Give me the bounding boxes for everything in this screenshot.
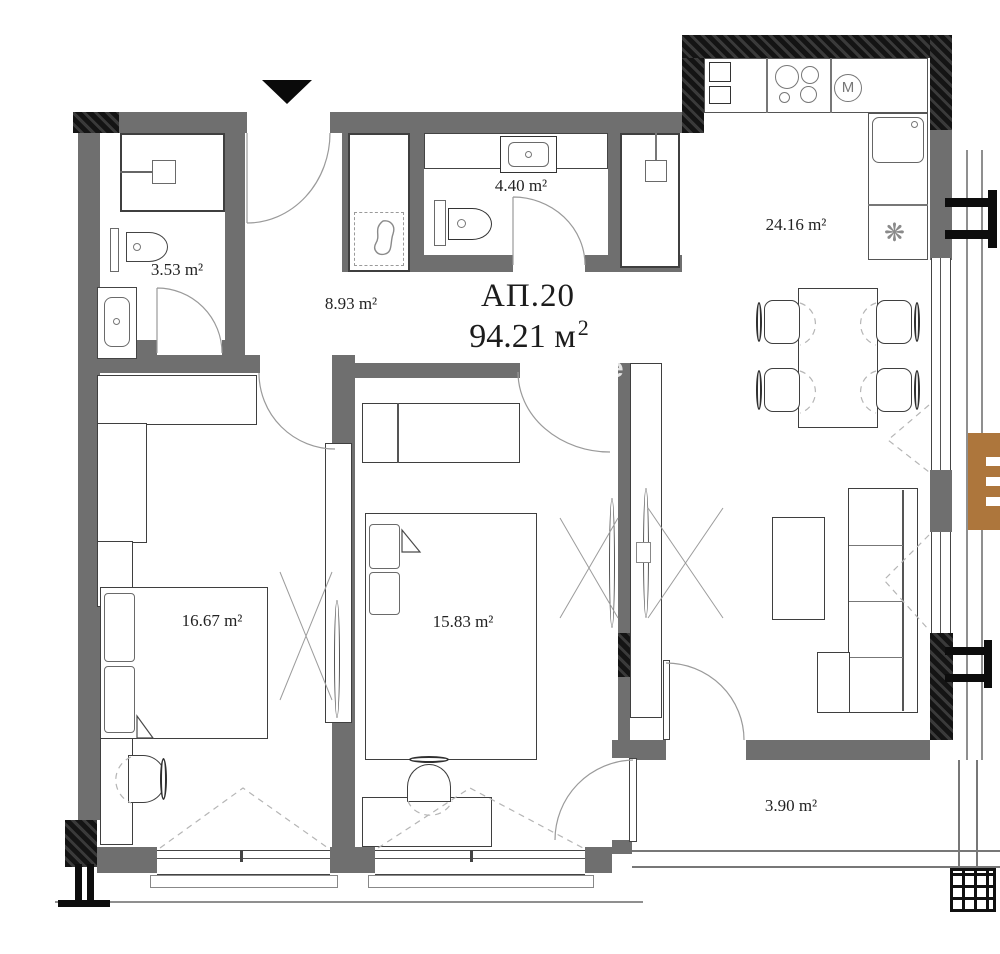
window-open-right1 bbox=[888, 405, 929, 472]
sliding-door-bedroom2 bbox=[609, 498, 615, 628]
bed-2-pillow-b bbox=[369, 572, 400, 615]
desk-chair-1-back bbox=[160, 758, 167, 800]
wall-right-top bbox=[930, 35, 952, 130]
balcony-column-grid bbox=[950, 868, 996, 912]
door-arc-bath1 bbox=[157, 288, 222, 353]
closet-right bbox=[620, 133, 680, 268]
dining-chair-2 bbox=[764, 368, 800, 412]
wardrobe-bed2-top bbox=[362, 403, 520, 463]
dining-table bbox=[798, 288, 878, 428]
fixture-stem bbox=[655, 133, 657, 160]
window-bedroom1-mullion bbox=[240, 850, 243, 862]
label-bathroom1: 3.53 m² bbox=[138, 260, 216, 280]
watermark: e bbox=[608, 352, 624, 384]
desk-2 bbox=[362, 797, 492, 847]
toilet-2-icon bbox=[448, 208, 492, 240]
label-bathroom2: 4.40 m² bbox=[478, 176, 564, 196]
wall-bedroom2-top bbox=[355, 363, 520, 378]
dining-chair-4 bbox=[876, 368, 912, 412]
ground-line bbox=[55, 901, 643, 903]
kitchen-counter-top bbox=[704, 58, 928, 113]
apartment-total-area: 94.21 м2 bbox=[418, 318, 638, 356]
door-leaf-balcony-living bbox=[663, 660, 670, 740]
desk-chair-2-back bbox=[409, 756, 449, 763]
label-kitchen-living: 24.16 m² bbox=[748, 215, 844, 235]
door-arc-entry bbox=[247, 133, 330, 223]
balcony-rail-r1 bbox=[958, 760, 960, 866]
wall-top-2 bbox=[330, 112, 682, 133]
kitchen-unit-a bbox=[709, 62, 731, 82]
toilet-1-drain bbox=[133, 243, 141, 251]
counter-divider-1 bbox=[766, 58, 768, 113]
section-marker-bottom-left bbox=[58, 864, 110, 908]
toilet-2-drain bbox=[457, 219, 466, 228]
counter-right-div bbox=[868, 204, 928, 206]
entrance-arrow-icon bbox=[262, 80, 312, 104]
wardrobe-bed2-div bbox=[397, 403, 399, 463]
total-area-sup: 2 bbox=[578, 315, 589, 340]
sink-2-drain bbox=[525, 151, 532, 158]
wall-closetL-bath2 bbox=[410, 133, 424, 272]
wall-bed2-balcony-b bbox=[612, 840, 632, 854]
wall-wardrobe-strip bbox=[618, 363, 630, 740]
window-bedroom1-sill bbox=[150, 875, 338, 888]
window-right-2-glass bbox=[940, 532, 941, 633]
window-bedroom2-sill bbox=[368, 875, 594, 888]
dining-chair-2-back bbox=[756, 370, 762, 410]
wardrobe-bed1-side bbox=[97, 423, 147, 543]
coffee-table bbox=[772, 517, 825, 620]
label-bedroom1: 16.67 m² bbox=[168, 611, 256, 631]
dining-chair-1-back bbox=[756, 302, 762, 342]
wall-kitchen-top bbox=[682, 35, 935, 58]
door-arc-bath2 bbox=[513, 197, 585, 265]
stove-burner-4 bbox=[800, 86, 817, 103]
toilet-2-cistern bbox=[434, 200, 446, 246]
dining-chair-4-back bbox=[914, 370, 920, 410]
wall-right-2 bbox=[930, 470, 952, 532]
apartment-title: АП.20 bbox=[418, 278, 638, 315]
window-bedroom2-glass bbox=[375, 858, 585, 859]
label-balcony: 3.90 m² bbox=[748, 796, 834, 816]
wall-living-bottom-b bbox=[746, 740, 930, 760]
bed-2-pillow-a bbox=[369, 524, 400, 569]
sofa-chaise bbox=[817, 652, 850, 713]
toilet-1-cistern bbox=[110, 228, 119, 272]
fridge-icon: ❋ bbox=[884, 218, 905, 248]
window-bedroom1-glass bbox=[157, 858, 330, 859]
bed-1-pillow-b bbox=[104, 666, 135, 733]
wall-fixture-icon bbox=[645, 160, 667, 182]
sofa-cushion-3 bbox=[849, 657, 903, 658]
column-bottom-left bbox=[65, 820, 97, 867]
dining-chair-3 bbox=[876, 300, 912, 344]
shower-head-icon bbox=[152, 160, 176, 184]
wall-top-1 bbox=[119, 112, 247, 133]
wardrobe-handle bbox=[636, 542, 651, 563]
wall-living-bottom-a bbox=[632, 740, 666, 760]
kitchen-unit-b bbox=[709, 86, 731, 104]
bed-1-pillow-a bbox=[104, 593, 135, 662]
dining-chair-1 bbox=[764, 300, 800, 344]
label-bedroom2: 15.83 m² bbox=[418, 612, 508, 632]
desk-chair-2 bbox=[407, 764, 451, 802]
logo-badge bbox=[968, 433, 1000, 530]
sofa-cushion-1 bbox=[849, 545, 903, 546]
dining-chair-3-back bbox=[914, 302, 920, 342]
sofa-cushion-2 bbox=[849, 601, 903, 602]
window-open-bedroom1 bbox=[160, 788, 328, 848]
floor-plan: M ❋ bbox=[0, 0, 1000, 954]
balcony-rail-1 bbox=[632, 850, 1000, 852]
total-area-main: 94.21 м bbox=[469, 318, 576, 355]
wall-bath1-right bbox=[225, 133, 245, 358]
section-marker-right-mid bbox=[945, 640, 995, 690]
window-bedroom2-mullion bbox=[470, 850, 473, 862]
door-arc-bedroom2 bbox=[518, 372, 610, 452]
window-bedroom1 bbox=[157, 850, 330, 875]
window-bedroom2 bbox=[375, 850, 585, 875]
door-arc-balcony-bed2 bbox=[555, 760, 633, 840]
water-heater-box bbox=[354, 212, 404, 266]
stove-burner-2 bbox=[801, 66, 819, 84]
wall-bottom-c bbox=[585, 847, 612, 873]
door-arc-balcony-living bbox=[666, 663, 744, 740]
counter-divider-2 bbox=[830, 58, 832, 113]
wall-bottom-b bbox=[330, 847, 375, 873]
column-top-left bbox=[73, 112, 119, 133]
wall-bath2-bottom-a bbox=[424, 255, 513, 272]
door-leaf-balcony-bed2 bbox=[629, 758, 637, 842]
label-hallway: 8.93 m² bbox=[313, 294, 389, 314]
section-marker-right-top bbox=[945, 190, 998, 250]
balcony-rail-2 bbox=[632, 866, 1000, 868]
wardrobe-bed1-top bbox=[97, 375, 257, 425]
appliance-m-icon: M bbox=[834, 74, 862, 102]
sliding-door-bed1 bbox=[334, 600, 340, 718]
sink-1-drain bbox=[113, 318, 120, 325]
kitchen-sink-drain bbox=[911, 121, 918, 128]
door-arc-bedroom1 bbox=[259, 373, 335, 449]
window-right-1-glass bbox=[940, 258, 941, 470]
shower-arm bbox=[120, 171, 154, 173]
stove-burner-1 bbox=[775, 65, 799, 89]
stove-burner-3 bbox=[779, 92, 790, 103]
balcony-rail-r2 bbox=[976, 760, 978, 866]
wall-bed2-balcony-a bbox=[612, 740, 632, 758]
